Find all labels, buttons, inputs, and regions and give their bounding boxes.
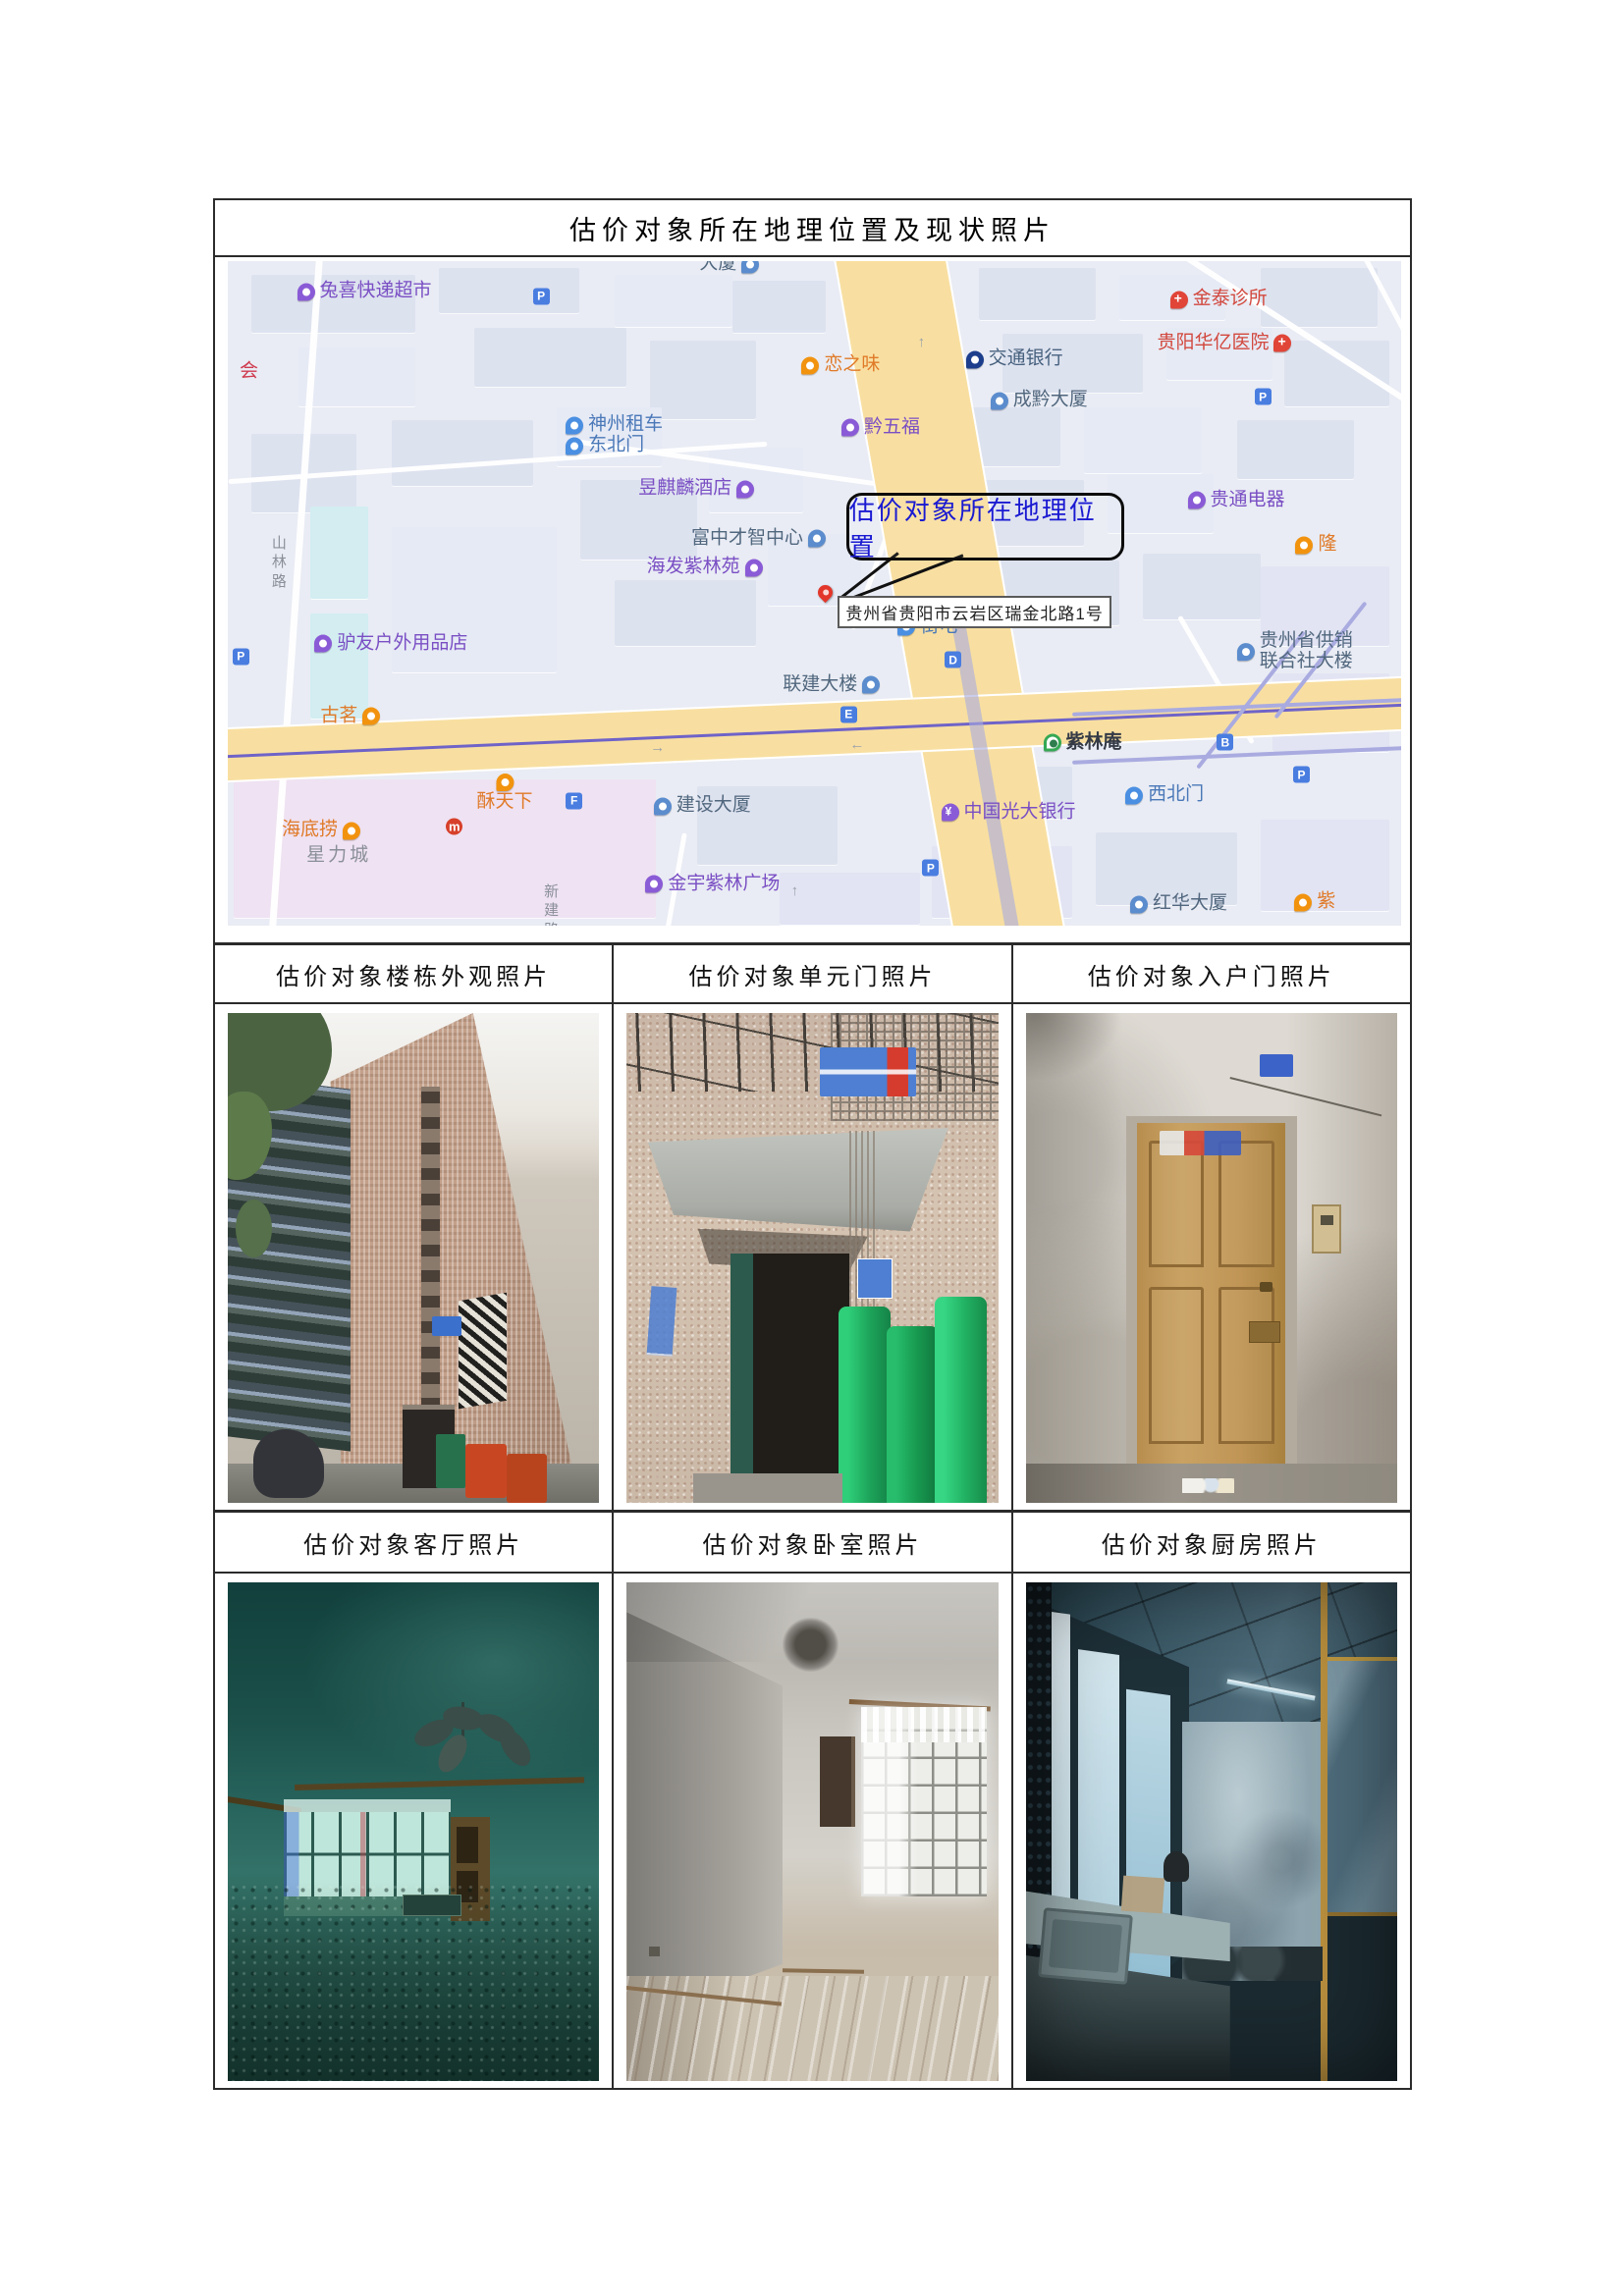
- shop-icon: [841, 419, 859, 437]
- road-arrow-icon: →: [650, 739, 665, 756]
- photo-row: [215, 1004, 1410, 1513]
- map-poi: 大厦: [699, 261, 759, 275]
- map-building: [615, 580, 755, 647]
- red-bin: [465, 1444, 507, 1498]
- door-handle: [1260, 1282, 1272, 1292]
- map-poi: 联建大楼: [783, 674, 880, 695]
- photo-cell: [215, 1004, 612, 1510]
- photo-row: [215, 1574, 1410, 2088]
- small-sign: [432, 1316, 461, 1336]
- gate-icon: [1125, 786, 1143, 804]
- door-panel: [1218, 1141, 1274, 1268]
- map-poi: 金宇紫林广场: [645, 875, 780, 895]
- photo-living-room: [228, 1582, 599, 2081]
- building-icon: [741, 261, 759, 273]
- ceiling-light: [783, 1618, 839, 1673]
- caption-entrance-door: 估价对象入户门照片: [1011, 945, 1410, 1002]
- residence-icon: [745, 559, 763, 576]
- clinic-icon: [1170, 291, 1188, 308]
- map-building: [1143, 554, 1261, 620]
- parking-icon: P: [533, 288, 550, 304]
- floor-debris: [1182, 1478, 1234, 1493]
- map-poi: 恋之味: [801, 355, 880, 376]
- floor-mat: [403, 1895, 462, 1917]
- road-label-xinjianlu: 新建路: [542, 882, 561, 926]
- map-poi: 昱麒麟酒店: [638, 479, 754, 500]
- curtain: [861, 1707, 988, 1742]
- photo-location-table: 估价对象所在地理位置及现状照片: [213, 198, 1412, 2090]
- map-poi: 交通银行: [966, 349, 1063, 370]
- map-poi: 神州租车: [566, 415, 663, 436]
- gate-icon: [566, 437, 583, 454]
- photo-entrance-door: [1026, 1013, 1397, 1503]
- exit-f-icon: F: [566, 792, 582, 809]
- map-poi: 驴友户外用品店: [314, 633, 467, 654]
- blue-address-sign: [820, 1047, 916, 1096]
- exit-e-icon: E: [840, 706, 857, 722]
- exit-b-icon: B: [1217, 734, 1233, 751]
- water-tank: [935, 1297, 987, 1503]
- shop-icon: [314, 635, 332, 653]
- wall-cabinet: [820, 1736, 855, 1826]
- map-poi: 建设大厦: [654, 796, 751, 817]
- shop-icon: [1188, 492, 1206, 509]
- location-map: 山林路 新建路 ↑ ← ↑ → 兔喜快递超市 恋之味 交通银行 金泰诊所 贵阳华…: [228, 261, 1401, 926]
- map-poi: 金泰诊所: [1170, 290, 1268, 310]
- caption-row: 估价对象楼栋外观照片 估价对象单元门照片 估价对象入户门照片: [215, 945, 1410, 1004]
- document-page: 估价对象所在地理位置及现状照片: [0, 0, 1624, 2296]
- map-building: [979, 268, 1097, 321]
- caption-living-room: 估价对象客厅照片: [215, 1513, 612, 1572]
- map-building: [1237, 420, 1355, 480]
- road-arrow-icon: ↑: [918, 334, 926, 350]
- orange-bin: [507, 1454, 548, 1503]
- shop-icon: [298, 283, 315, 300]
- caption-kitchen: 估价对象厨房照片: [1011, 1513, 1410, 1572]
- map-poi: 成黔大厦: [991, 391, 1088, 411]
- road-arrow-icon: ←: [849, 736, 864, 753]
- door-lock: [1249, 1321, 1280, 1343]
- restaurant-icon: [343, 822, 360, 839]
- vignette: [1026, 1582, 1397, 2081]
- metro-station-icon: [1044, 734, 1061, 752]
- map-building: [474, 328, 626, 388]
- map-building: [732, 281, 827, 334]
- map-poi: 海底捞: [282, 821, 360, 841]
- map-building: [392, 420, 532, 487]
- map-poi: 紫: [1294, 892, 1335, 913]
- caption-unit-door: 估价对象单元门照片: [612, 945, 1010, 1002]
- car-rental-icon: [566, 416, 583, 434]
- bank-icon: [942, 804, 959, 822]
- exit-d-icon: D: [945, 652, 961, 668]
- photo-kitchen: [1026, 1582, 1397, 2081]
- map-poi: 酥天下: [477, 774, 533, 813]
- map-building: [310, 614, 369, 720]
- map-building: [615, 275, 732, 328]
- building-icon: [1237, 643, 1255, 661]
- restaurant-icon: [1295, 536, 1313, 554]
- photo-cell: [612, 1574, 1010, 2088]
- parking-icon: P: [1293, 767, 1310, 783]
- parking-icon: P: [1255, 389, 1272, 405]
- map-poi: 兔喜快递超市: [298, 282, 432, 302]
- address-label: 贵州省贵阳市云岩区瑞金北路1号: [838, 596, 1110, 628]
- restaurant-icon: [496, 774, 514, 791]
- wall-wire: [1229, 1077, 1381, 1116]
- caption-row: 估价对象客厅照片 估价对象卧室照片 估价对象厨房照片: [215, 1513, 1410, 1574]
- map-poi: 星力城: [306, 845, 371, 866]
- map-poi: 贵通电器: [1188, 490, 1285, 510]
- small-sign: [857, 1258, 893, 1300]
- map-building: [439, 268, 579, 314]
- map-building: [650, 341, 756, 420]
- map-poi: 中国光大银行: [942, 802, 1076, 823]
- map-poi: 隆: [1295, 535, 1336, 556]
- map-poi: 红华大厦: [1130, 894, 1227, 915]
- map-poi: 海发紫林苑: [647, 558, 763, 578]
- bank-icon: [966, 350, 984, 368]
- shop-icon: [645, 876, 663, 893]
- map-building: [1084, 407, 1202, 474]
- left-wall: [626, 1612, 783, 2021]
- page-title: 估价对象所在地理位置及现状照片: [569, 209, 1056, 247]
- photo-bedroom: [626, 1582, 998, 2081]
- outlet: [649, 1947, 660, 1956]
- map-poi: 西北门: [1125, 785, 1204, 806]
- road-arrow-icon: ↑: [791, 882, 799, 899]
- building-icon: [808, 530, 826, 548]
- door-panel: [1218, 1287, 1274, 1444]
- intercom-box: [1312, 1204, 1341, 1254]
- building-icon: [862, 676, 880, 694]
- caption-building-exterior: 估价对象楼栋外观照片: [215, 945, 612, 1002]
- location-callout: 估价对象所在地理位置: [846, 493, 1124, 561]
- map-row: 山林路 新建路 ↑ ← ↑ → 兔喜快递超市 恋之味 交通银行 金泰诊所 贵阳华…: [215, 257, 1410, 945]
- map-building-mall: [234, 779, 656, 919]
- map-poi: 紫林庵: [1044, 732, 1122, 753]
- water-tank: [839, 1307, 891, 1503]
- map-poi: 东北门: [566, 436, 644, 456]
- building-icon: [991, 392, 1008, 409]
- mcdonalds-icon: m: [446, 819, 462, 835]
- hospital-icon: [1273, 335, 1291, 352]
- caption-bedroom: 估价对象卧室照片: [612, 1513, 1010, 1572]
- map-poi: 贵阳华亿医院: [1157, 333, 1291, 353]
- map-building: [780, 873, 920, 926]
- hazard-stripes: [459, 1293, 507, 1409]
- map-poi: 古茗: [320, 706, 380, 726]
- skirting: [783, 1968, 864, 1973]
- table-title-row: 估价对象所在地理位置及现状照片: [215, 200, 1410, 257]
- tea-shop-icon: [362, 708, 380, 725]
- photo-cell: [215, 1574, 612, 2088]
- door-panel: [1149, 1287, 1205, 1444]
- photo-cell: [1011, 1574, 1410, 2088]
- steps: [693, 1473, 841, 1503]
- road-label-shanlinlu: 山林路: [270, 534, 289, 592]
- door-panel: [1149, 1141, 1205, 1268]
- map-poi: 富中才智中心: [691, 529, 826, 550]
- photo-cell: [1011, 1004, 1410, 1510]
- photo-cell: [612, 1004, 1010, 1510]
- map-poi: 黔五福: [841, 417, 920, 438]
- building-icon: [654, 797, 672, 815]
- map-poi: 会: [240, 362, 258, 383]
- restaurant-icon: [1294, 893, 1312, 911]
- transit-road: [1072, 745, 1401, 765]
- concrete-canopy: [641, 1126, 960, 1244]
- map-building: [310, 507, 369, 600]
- map-poi: 贵州省供销联合社大楼: [1237, 631, 1359, 672]
- water-tank: [887, 1326, 939, 1503]
- unit-number-plate: [1260, 1054, 1293, 1076]
- small-sign: [647, 1287, 677, 1358]
- green-bin: [436, 1434, 465, 1488]
- wall-stain: [1026, 1013, 1122, 1082]
- photo-unit-door: [626, 1013, 998, 1503]
- door-stickers: [1160, 1131, 1241, 1155]
- restaurant-icon: [801, 356, 819, 374]
- door-frame: [731, 1254, 753, 1494]
- photo-building-exterior: [228, 1013, 599, 1503]
- building-windows: [421, 1087, 440, 1410]
- hotel-icon: [736, 480, 754, 498]
- parking-icon: P: [922, 860, 939, 877]
- callout-text: 估价对象所在地理位置: [849, 491, 1121, 563]
- building-icon: [1130, 895, 1148, 913]
- parking-icon: P: [233, 648, 249, 665]
